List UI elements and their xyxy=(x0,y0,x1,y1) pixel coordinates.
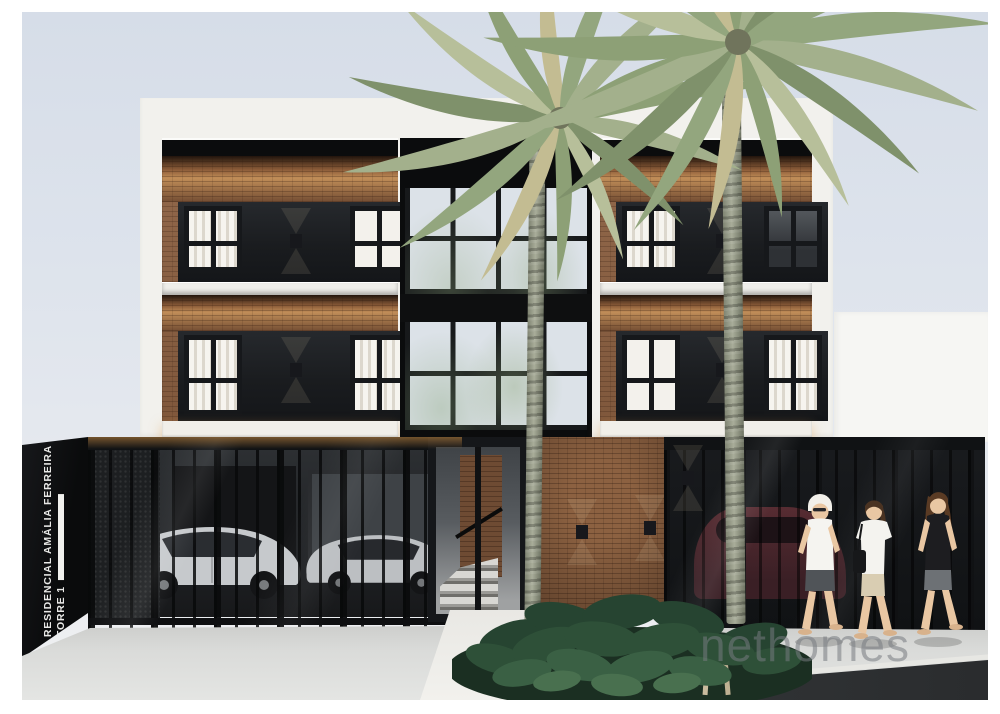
pedestrian-3 xyxy=(914,492,963,647)
building-sign: RESIDENCIAL AMÁLIA FERREIRA TORRE 1 xyxy=(42,445,68,637)
wall-sconce xyxy=(576,525,588,539)
architectural-rendering: RESIDENCIAL AMÁLIA FERREIRA TORRE 1 xyxy=(22,12,988,700)
gate-top-rail xyxy=(88,437,462,450)
wall-sconce xyxy=(644,521,656,535)
palm-canopies xyxy=(22,12,988,442)
sign-bar-graphic xyxy=(58,494,64,580)
glass-reflection xyxy=(88,437,462,629)
page: RESIDENCIAL AMÁLIA FERREIRA TORRE 1 xyxy=(0,0,1000,714)
watermark: nethomes xyxy=(700,618,910,672)
sign-line-2: TORRE 1 xyxy=(55,445,68,637)
left-vehicle-gate xyxy=(88,437,462,629)
sign-line-1: RESIDENCIAL AMÁLIA FERREIRA xyxy=(42,445,55,637)
